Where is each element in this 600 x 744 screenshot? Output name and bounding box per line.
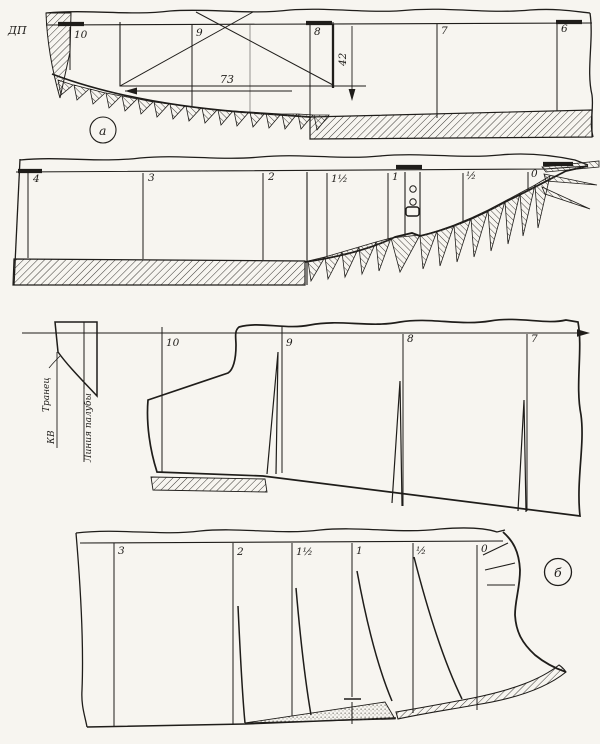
dim-height-arrow xyxy=(349,89,356,101)
torn-left-edge xyxy=(76,533,87,727)
strake-panel-3 xyxy=(22,319,590,516)
torn-top-edge xyxy=(20,154,588,165)
strip3-station-label-7: 7 xyxy=(531,333,538,345)
strip4-station-label-1half: 1½ xyxy=(296,546,313,558)
bow-outline xyxy=(503,532,566,672)
strip3-station-label-8: 8 xyxy=(407,333,414,345)
sawtooth-darts xyxy=(308,176,550,281)
strip1-station-label-6: 6 xyxy=(561,23,568,35)
station-lines xyxy=(28,172,528,260)
dim-width-label: 73 xyxy=(220,73,234,86)
sheer-line xyxy=(80,541,503,543)
transom-label: Транец xyxy=(42,377,52,412)
strip2-station-label-1half: 1½ xyxy=(331,173,348,185)
strip2-station-label-2: 2 xyxy=(267,171,275,183)
sheer-line xyxy=(16,166,588,172)
strip4-station-label-3: 3 xyxy=(118,545,125,557)
hatched-edge-band xyxy=(13,259,305,285)
fan-darts xyxy=(483,543,515,585)
strip4-station-label-half: ½ xyxy=(416,545,426,557)
strip4-station-label-2: 2 xyxy=(236,546,244,558)
strip2-station-label-1: 1 xyxy=(392,171,399,183)
strip1-station-label-8: 8 xyxy=(314,26,321,38)
panel-a-badge-letter: а xyxy=(99,123,106,138)
strip4-station-label-1: 1 xyxy=(356,545,363,557)
torn-top-edge xyxy=(76,528,505,533)
strake-panel-2 xyxy=(13,154,599,285)
strip3-station-label-9b: 9 xyxy=(286,337,293,349)
strip3-station-label-10: 10 xyxy=(166,337,180,349)
deck-line-label: Линия палубы xyxy=(83,393,94,463)
hatched-lap-strip xyxy=(151,477,267,492)
strake-panel-4 xyxy=(76,528,572,727)
strip4-station-label-0: 0 xyxy=(481,543,488,555)
stippled-wedge xyxy=(245,702,395,723)
scanned-figure-page: ДП 10 9 8 7 6 73 42 а 4 3 2 1½ 1 ½ 0 xyxy=(0,0,600,744)
strip2-station-label-3: 3 xyxy=(148,172,155,184)
torn-top-edge xyxy=(46,9,590,13)
dim-width-arrow xyxy=(125,88,137,95)
fastener-slot xyxy=(406,207,419,216)
transom-leader-line xyxy=(49,356,60,368)
strip2-station-label-0: 0 xyxy=(531,168,538,180)
plating-expansion-drawing: ДП 10 9 8 7 6 73 42 а 4 3 2 1½ 1 ½ 0 xyxy=(0,0,600,744)
hatched-stem-band xyxy=(396,665,566,719)
sliver-dart-lines xyxy=(238,557,462,723)
station-lines xyxy=(114,543,477,726)
strip1-station-label-7: 7 xyxy=(441,25,448,37)
strip2-station-label-4: 4 xyxy=(32,173,40,185)
fastener-hole-bottom xyxy=(410,199,416,205)
sliver-darts xyxy=(267,352,526,512)
strip1-station-label-9: 9 xyxy=(196,27,203,39)
waterline-label: КВ xyxy=(47,430,57,445)
hatched-edge-band xyxy=(310,110,592,139)
strip1-station-label-10: 10 xyxy=(74,29,88,41)
centerline-label: ДП xyxy=(7,24,27,37)
strip2-station-label-half: ½ xyxy=(466,170,476,182)
panel-b-badge-letter: б xyxy=(554,565,562,580)
fastener-hole-top xyxy=(410,186,416,192)
dim-height-label: 42 xyxy=(337,52,349,67)
dim-width-line xyxy=(125,86,366,91)
